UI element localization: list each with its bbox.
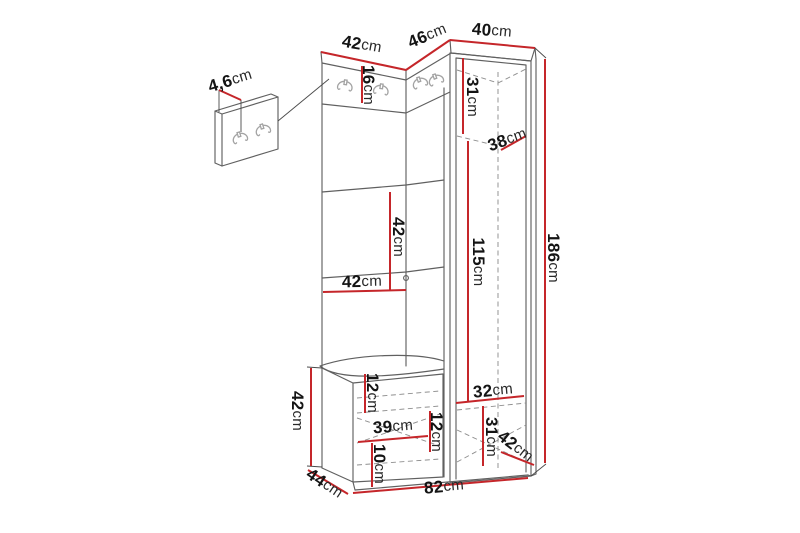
coat-hook-icon	[231, 130, 248, 144]
coat-hook-icon	[254, 122, 271, 136]
inset-hook-panel	[215, 94, 278, 166]
ext-total-height	[531, 48, 546, 476]
panel-seam-upper	[322, 180, 444, 192]
dimension-label-bench-width: 39cm	[372, 415, 413, 437]
cabinet-side-edge	[531, 59, 536, 476]
dimension-label-bench-inner-height: 12cm	[428, 412, 447, 452]
coat-hook-icon	[427, 72, 444, 87]
dimension-label-top-middle-width: 46cm	[405, 19, 449, 52]
coat-hooks	[231, 72, 444, 144]
dimension-labels: 42cm 46cm 40cm 4,6cm 16cm 31cm 38cm 42cm…	[206, 19, 564, 502]
diagram-canvas: 42cm 46cm 40cm 4,6cm 16cm 31cm 38cm 42cm…	[0, 0, 800, 533]
dimension-label-top-right-width: 40cm	[471, 19, 513, 41]
dimension-label-bench-bottom-offset: 10cm	[371, 444, 390, 484]
pointer-line-inset	[278, 79, 329, 121]
ext-bench-height	[307, 367, 322, 467]
dimension-label-cabinet-depth-top: 38cm	[485, 123, 529, 155]
dimension-line-top-right-width	[450, 40, 535, 48]
extension-lines	[219, 48, 546, 476]
dimension-label-cabinet-upper-section: 31cm	[464, 77, 483, 117]
dimension-label-total-width: 82cm	[423, 475, 465, 497]
cabinet-door-frame	[456, 58, 526, 479]
dimension-line-panel-width	[323, 290, 406, 292]
dimension-label-panel-segment-height: 42cm	[390, 217, 409, 257]
furniture-dimension-diagram: 42cm 46cm 40cm 4,6cm 16cm 31cm 38cm 42cm…	[0, 0, 800, 533]
dimension-label-top-left-width: 42cm	[341, 31, 384, 57]
dimension-label-total-height: 186cm	[545, 233, 564, 283]
inset-panel-front-face	[222, 97, 278, 166]
dimension-label-hook-panel-depth: 4,6cm	[206, 64, 255, 95]
dimension-label-bench-height: 42cm	[289, 391, 308, 431]
panel-seam-lower	[322, 267, 444, 278]
coat-hook-icon	[337, 79, 353, 91]
dimension-label-hook-strip-height: 16cm	[360, 65, 379, 105]
dimension-label-bench-top-offset: 12cm	[364, 373, 383, 413]
bench-seat-back-curve	[320, 355, 444, 366]
dimension-label-panel-width: 42cm	[342, 271, 382, 291]
coat-hook-icon	[411, 75, 428, 90]
dimension-label-door-height: 115cm	[470, 238, 489, 287]
inset-panel-thickness	[215, 94, 278, 166]
